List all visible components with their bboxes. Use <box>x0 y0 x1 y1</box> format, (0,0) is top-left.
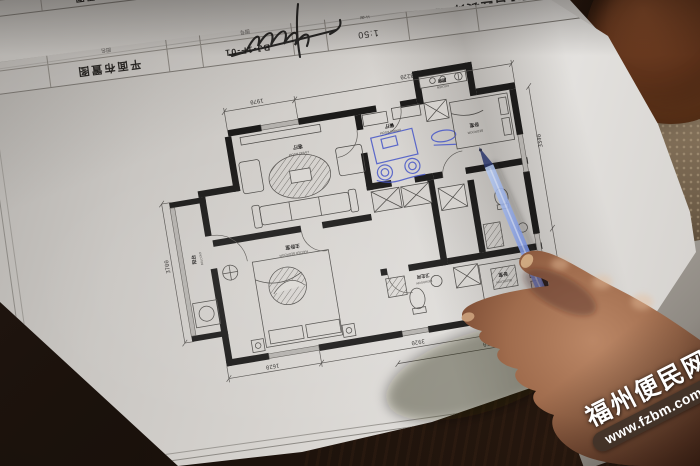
back-drawing-name: 平面布置图 <box>73 0 129 5</box>
cell-blank <box>0 0 43 17</box>
photo-of-floor-plan: BJ-1F-01 平面布置图 匠 日匠装饰 <box>0 0 700 466</box>
back-drawing-name-cell: 平面布置图 <box>41 0 162 11</box>
